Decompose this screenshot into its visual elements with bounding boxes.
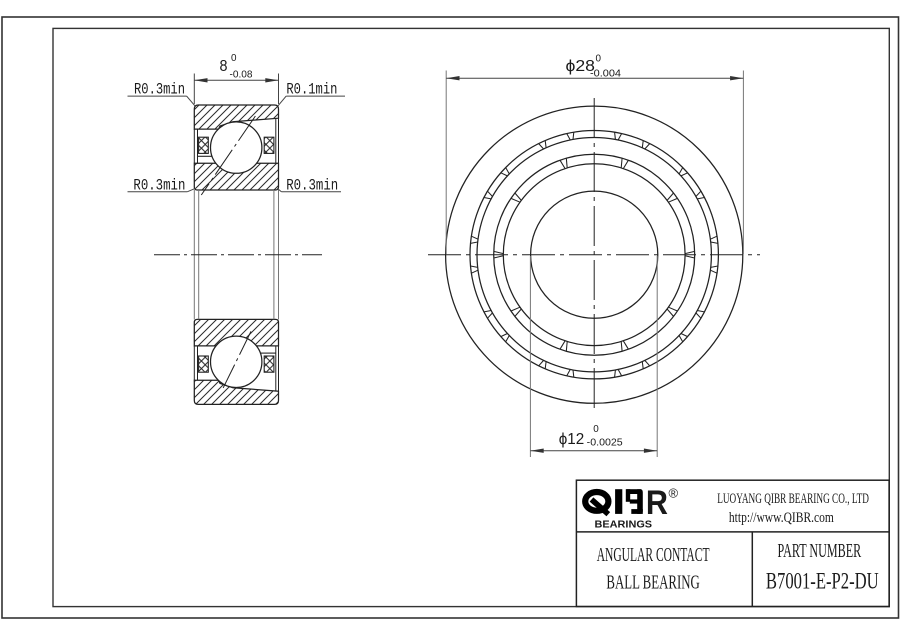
- svg-text:BALL BEARING: BALL BEARING: [606, 571, 700, 593]
- svg-text:-0.004: -0.004: [590, 67, 621, 79]
- svg-text:B7001-E-P2-DU: B7001-E-P2-DU: [766, 568, 879, 594]
- svg-text:http://www.QIBR.com: http://www.QIBR.com: [729, 510, 834, 526]
- svg-text:®: ®: [669, 486, 679, 501]
- svg-text:BEARINGS: BEARINGS: [595, 520, 653, 531]
- svg-text:ϕ12: ϕ12: [559, 431, 585, 448]
- svg-text:R0.1min: R0.1min: [286, 81, 337, 99]
- svg-text:R0.3min: R0.3min: [134, 81, 185, 99]
- svg-text:-0.08: -0.08: [230, 69, 253, 81]
- svg-text:LUOYANG QIBR BEARING CO., LTD: LUOYANG QIBR BEARING CO., LTD: [717, 491, 869, 507]
- svg-text:R0.3min: R0.3min: [133, 176, 185, 194]
- svg-text:0: 0: [596, 53, 602, 65]
- svg-text:0: 0: [593, 423, 599, 435]
- svg-text:ANGULAR CONTACT: ANGULAR CONTACT: [597, 544, 710, 566]
- svg-text:0: 0: [231, 52, 237, 64]
- svg-text:PART NUMBER: PART NUMBER: [778, 540, 862, 562]
- svg-text:R0.3min: R0.3min: [286, 176, 338, 194]
- svg-text:8: 8: [220, 58, 228, 75]
- svg-text:R: R: [646, 483, 668, 521]
- svg-text:-0.0025: -0.0025: [587, 437, 623, 449]
